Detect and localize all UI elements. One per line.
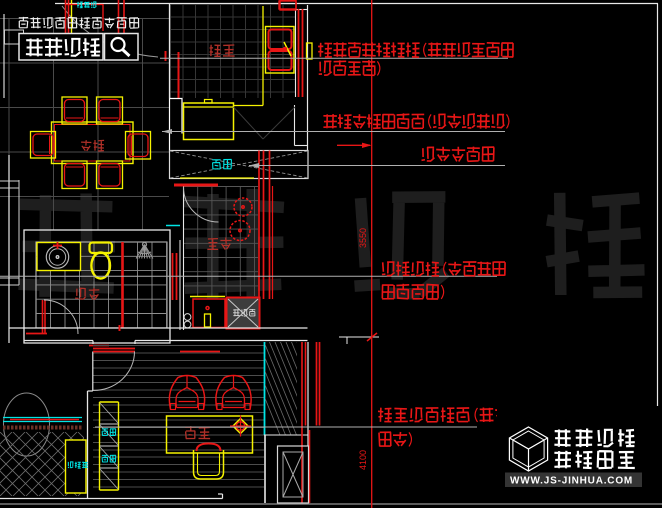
svg-text:3550: 3550: [358, 228, 368, 248]
svg-text:4100: 4100: [358, 450, 368, 470]
svg-text:WWW.JS-JINHUA.COM: WWW.JS-JINHUA.COM: [510, 476, 633, 487]
